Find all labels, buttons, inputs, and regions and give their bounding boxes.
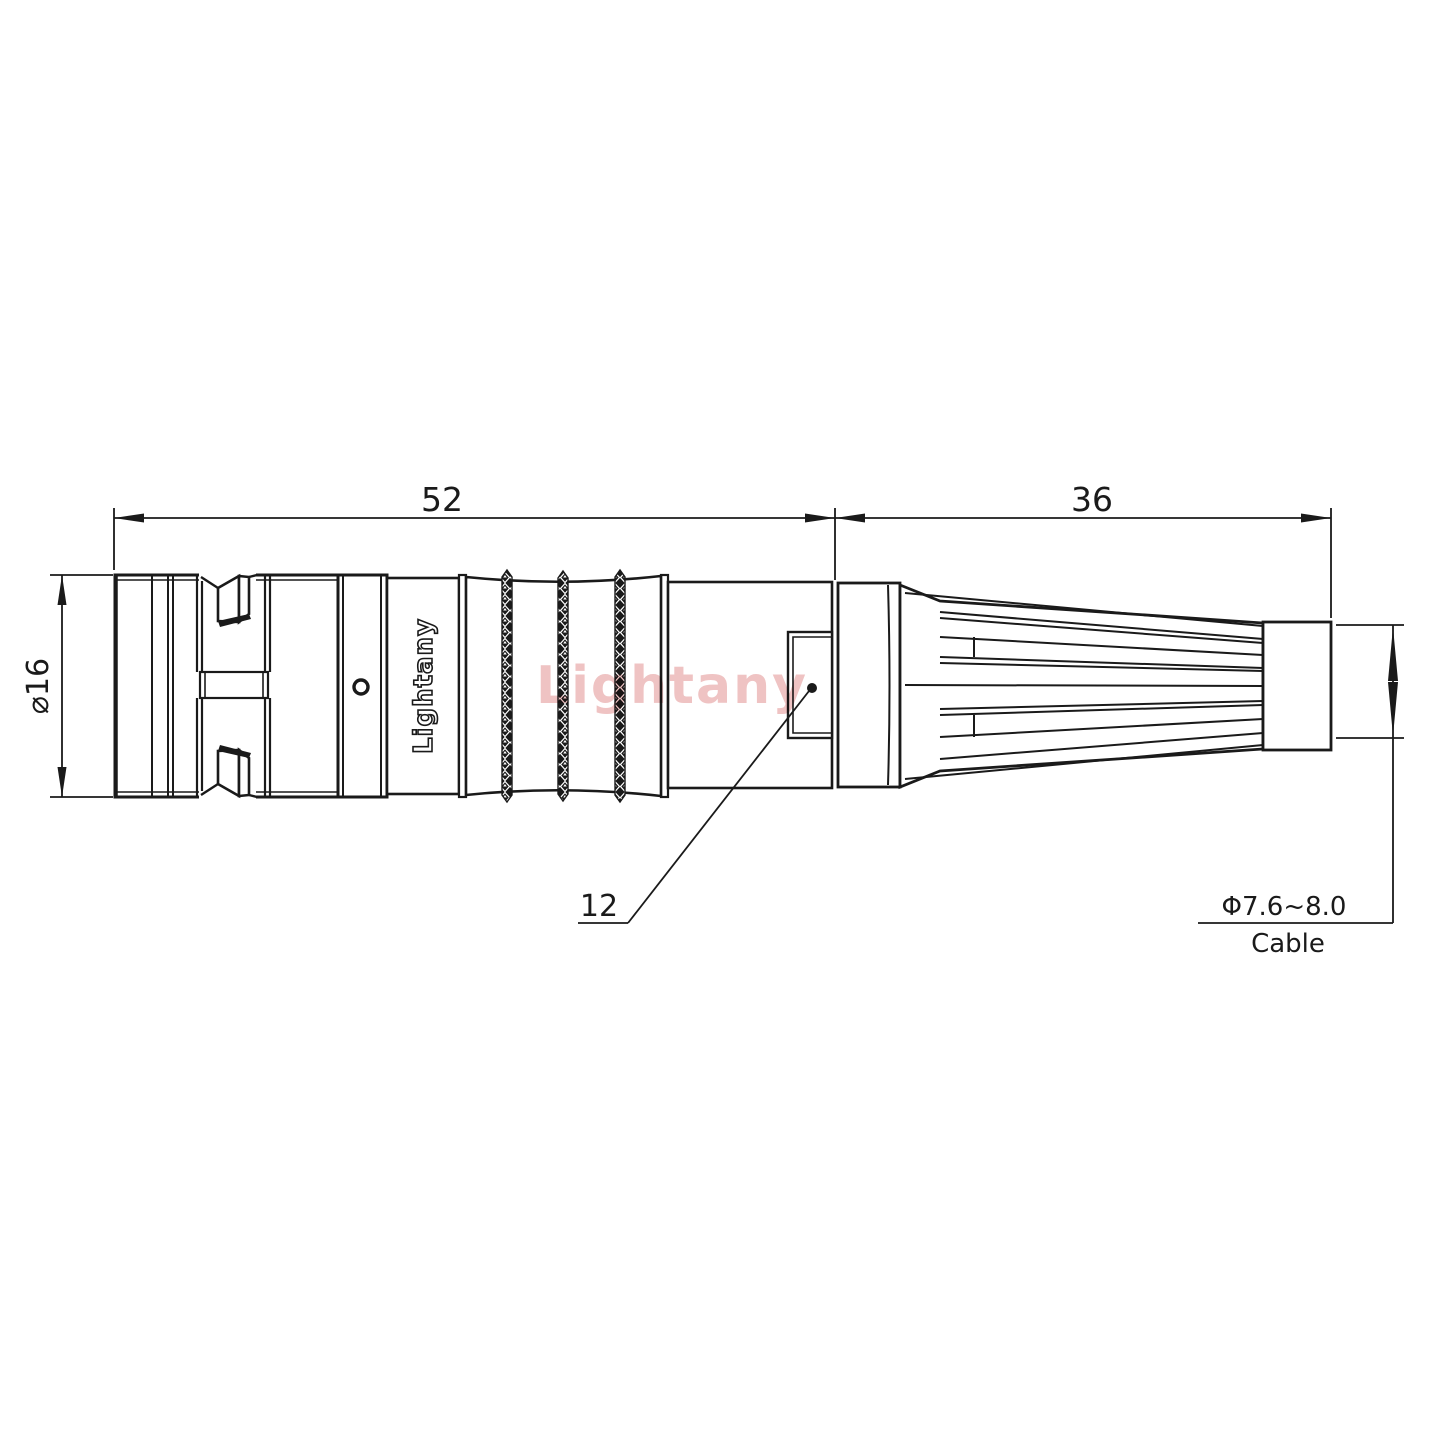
arrowhead bbox=[114, 514, 144, 523]
cable-diameter-label: Φ7.6~8.0 bbox=[1222, 892, 1347, 922]
latch-slot bbox=[200, 672, 268, 698]
dim-diameter-label: ⌀16 bbox=[21, 658, 56, 714]
marking-section: Lightany bbox=[387, 578, 459, 794]
dimension-diameter: ⌀16 bbox=[21, 575, 113, 797]
connector-technical-drawing: Lightany bbox=[0, 0, 1440, 1440]
body-marking-text: Lightany bbox=[409, 618, 439, 754]
boot-bell bbox=[838, 583, 900, 787]
cable-end-cap-outline bbox=[1263, 622, 1331, 750]
arrowhead bbox=[1388, 682, 1398, 736]
dimension-body-length: 52 bbox=[114, 480, 835, 580]
dim-boot-length-label: 36 bbox=[1071, 480, 1113, 519]
ref-12-label: 12 bbox=[580, 889, 618, 924]
cable-end-cap bbox=[1263, 622, 1331, 750]
dim-body-length-label: 52 bbox=[421, 480, 463, 519]
arrowhead bbox=[805, 514, 835, 523]
boot-rib-line bbox=[905, 685, 1263, 686]
knurl-band bbox=[502, 570, 512, 802]
strain-relief-boot bbox=[838, 583, 1263, 787]
leader-dot bbox=[807, 683, 817, 693]
coupling-collar bbox=[338, 575, 387, 797]
arrowhead bbox=[58, 767, 67, 797]
front-shell bbox=[115, 570, 338, 802]
arrowhead bbox=[1301, 514, 1331, 523]
watermark-text: Lightany bbox=[536, 656, 808, 716]
arrowhead bbox=[835, 514, 865, 523]
collar-hole bbox=[354, 680, 368, 694]
cable-word-label: Cable bbox=[1251, 929, 1325, 959]
arrowhead bbox=[1388, 627, 1398, 681]
arrowhead bbox=[58, 575, 67, 605]
technical-drawing-page: Lightany bbox=[0, 0, 1440, 1440]
